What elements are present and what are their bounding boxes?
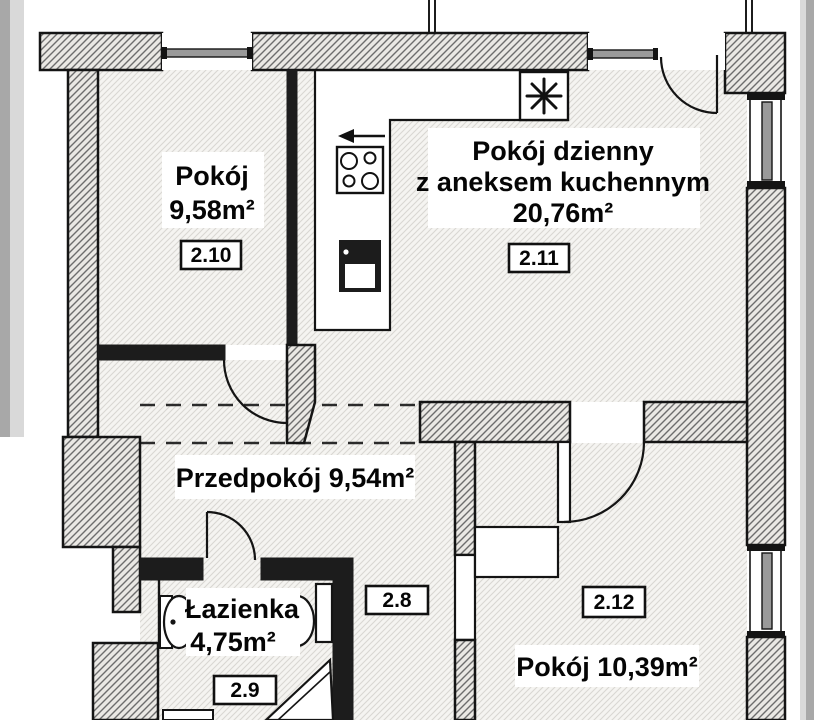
wall-bath-west: [93, 643, 158, 720]
floor-plan-drawing: Pokój 9,58m² 2.10 Pokój dzienny z anekse…: [0, 0, 814, 720]
wall-hall-west-step: [113, 547, 140, 612]
window-top-left: [162, 33, 252, 70]
room-212-number: 2.12: [594, 591, 635, 614]
room-210-area: 9,58m²: [169, 195, 255, 225]
kitchen-sink-icon: [339, 240, 381, 292]
washer-icon: [163, 710, 213, 720]
living-room-name-line1: Pokój dzienny: [472, 136, 654, 166]
wall-hall-west-block: [63, 437, 140, 547]
wall-corridor-east-opening: [455, 555, 475, 640]
wall-210-bottom: [98, 345, 225, 360]
wall-top-right-corner: [725, 33, 785, 93]
wall-top-middle: [252, 33, 588, 70]
wall-corridor-east-lower: [455, 640, 475, 720]
living-room-name-line2: z aneksem kuchennym: [416, 167, 710, 197]
room-212-niche: [475, 527, 558, 577]
bathroom-name: Łazienka: [185, 594, 300, 624]
wall-left: [68, 70, 98, 437]
hallway-label: Przedpokój 9,54m²: [176, 463, 415, 493]
wall-corridor-east-upper: [455, 442, 475, 555]
room-210-number: 2.10: [191, 244, 232, 267]
wall-right-lower: [747, 637, 785, 720]
room-210-name: Pokój: [175, 161, 249, 191]
living-room-number: 2.11: [519, 247, 559, 270]
wall-living-212-right: [644, 402, 747, 442]
wall-bath-east: [333, 558, 353, 720]
floor-plan-page: Pokój 9,58m² 2.10 Pokój dzienny z anekse…: [0, 0, 814, 720]
living-room-area: 20,76m²: [513, 198, 614, 228]
corridor-number: 2.8: [382, 589, 412, 612]
window-balcony: [588, 33, 725, 70]
stove-burners-icon: [337, 147, 383, 193]
bathroom-number: 2.9: [230, 679, 259, 702]
scan-edge-right-dark: [806, 0, 814, 720]
fridge-asterisk-icon: [520, 72, 568, 120]
wall-top-left: [40, 33, 162, 70]
window-right-upper: [747, 93, 785, 188]
bathroom-area: 4,75m²: [190, 627, 276, 657]
room-212-label: Pokój 10,39m²: [516, 652, 698, 682]
scan-edge-right-light: [800, 0, 806, 720]
wall-bath-top-right: [261, 558, 333, 580]
wall-210-living: [287, 70, 297, 345]
window-right-lower: [747, 545, 785, 637]
wall-living-212-left: [420, 402, 570, 442]
wall-right-upper: [747, 188, 785, 545]
wall-bath-top-left: [140, 558, 203, 580]
